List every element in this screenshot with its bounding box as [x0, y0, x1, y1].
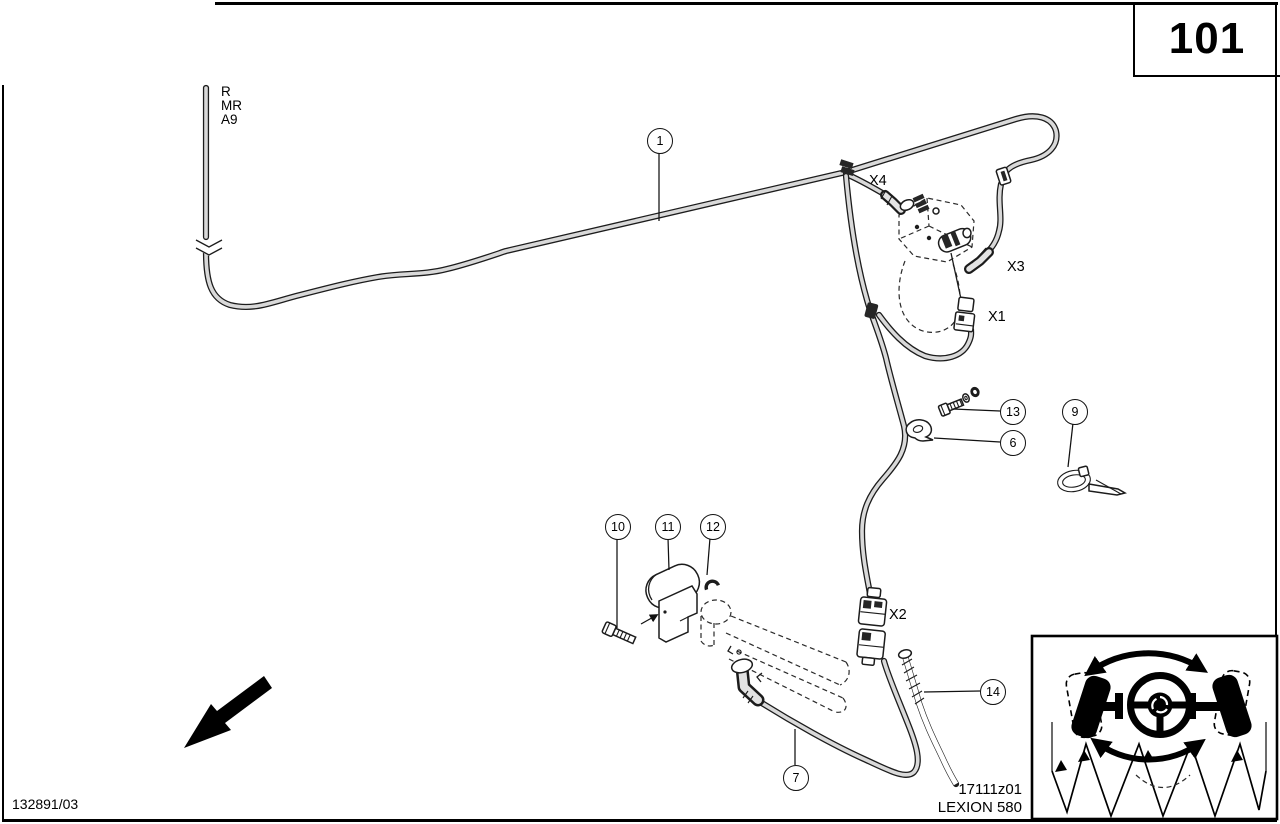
callout-13: 13 — [1000, 399, 1026, 425]
steering-inset-diagram — [1032, 636, 1277, 819]
x4-elbow-fitting — [881, 190, 901, 210]
parts-catalog-page: 1 6 7 9 10 11 12 13 14 101 R MR A9 X4 X3… — [0, 0, 1280, 824]
bolt-13 — [938, 385, 981, 416]
dashed-steering-cylinder — [701, 600, 849, 712]
callout-leader-lines — [617, 152, 1073, 765]
diagram-artwork — [0, 0, 1280, 824]
hose-7-elbow-fitting — [730, 657, 758, 703]
hose-7 — [757, 661, 918, 775]
valve-block — [899, 194, 974, 255]
travel-direction-arrow-icon — [184, 676, 272, 748]
hose-1 — [206, 88, 846, 307]
clamp-6 — [906, 420, 933, 441]
bolt-10 — [602, 615, 657, 646]
bracket-11 — [640, 559, 705, 642]
callout-11: 11 — [655, 514, 681, 540]
callout-6: 6 — [1000, 430, 1026, 456]
cable-tie-9 — [1056, 466, 1125, 495]
hose-vertical-run — [846, 176, 905, 599]
callout-14: 14 — [980, 679, 1006, 705]
callout-10: 10 — [605, 514, 631, 540]
callout-1: 1 — [647, 128, 673, 154]
callout-7: 7 — [783, 765, 809, 791]
x3-elbow-fitting — [969, 248, 989, 269]
callout-9: 9 — [1062, 399, 1088, 425]
hose-break-symbol — [196, 239, 222, 256]
x2-connector — [854, 587, 890, 667]
callout-12: 12 — [700, 514, 726, 540]
clip-12 — [704, 580, 718, 590]
hose-x4-branch — [846, 174, 884, 194]
